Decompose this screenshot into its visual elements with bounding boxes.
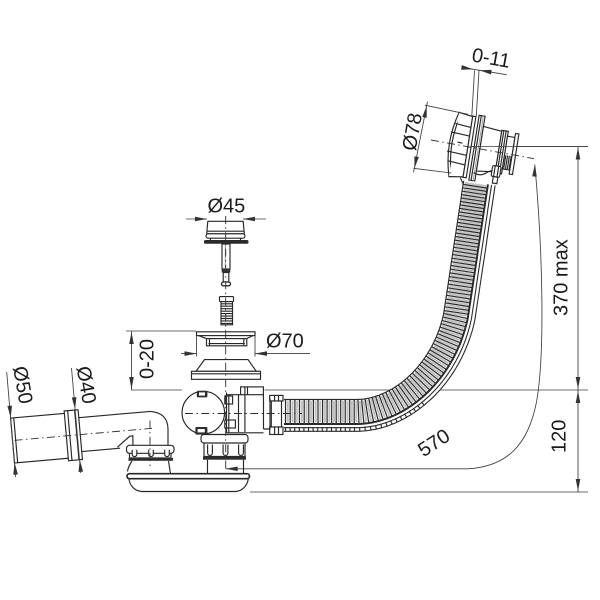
svg-text:Ø70: Ø70	[266, 331, 304, 353]
svg-text:0-20: 0-20	[137, 339, 159, 379]
svg-text:370 max: 370 max	[551, 239, 573, 316]
svg-text:Ø45: Ø45	[208, 196, 246, 218]
svg-text:120: 120	[549, 420, 571, 453]
